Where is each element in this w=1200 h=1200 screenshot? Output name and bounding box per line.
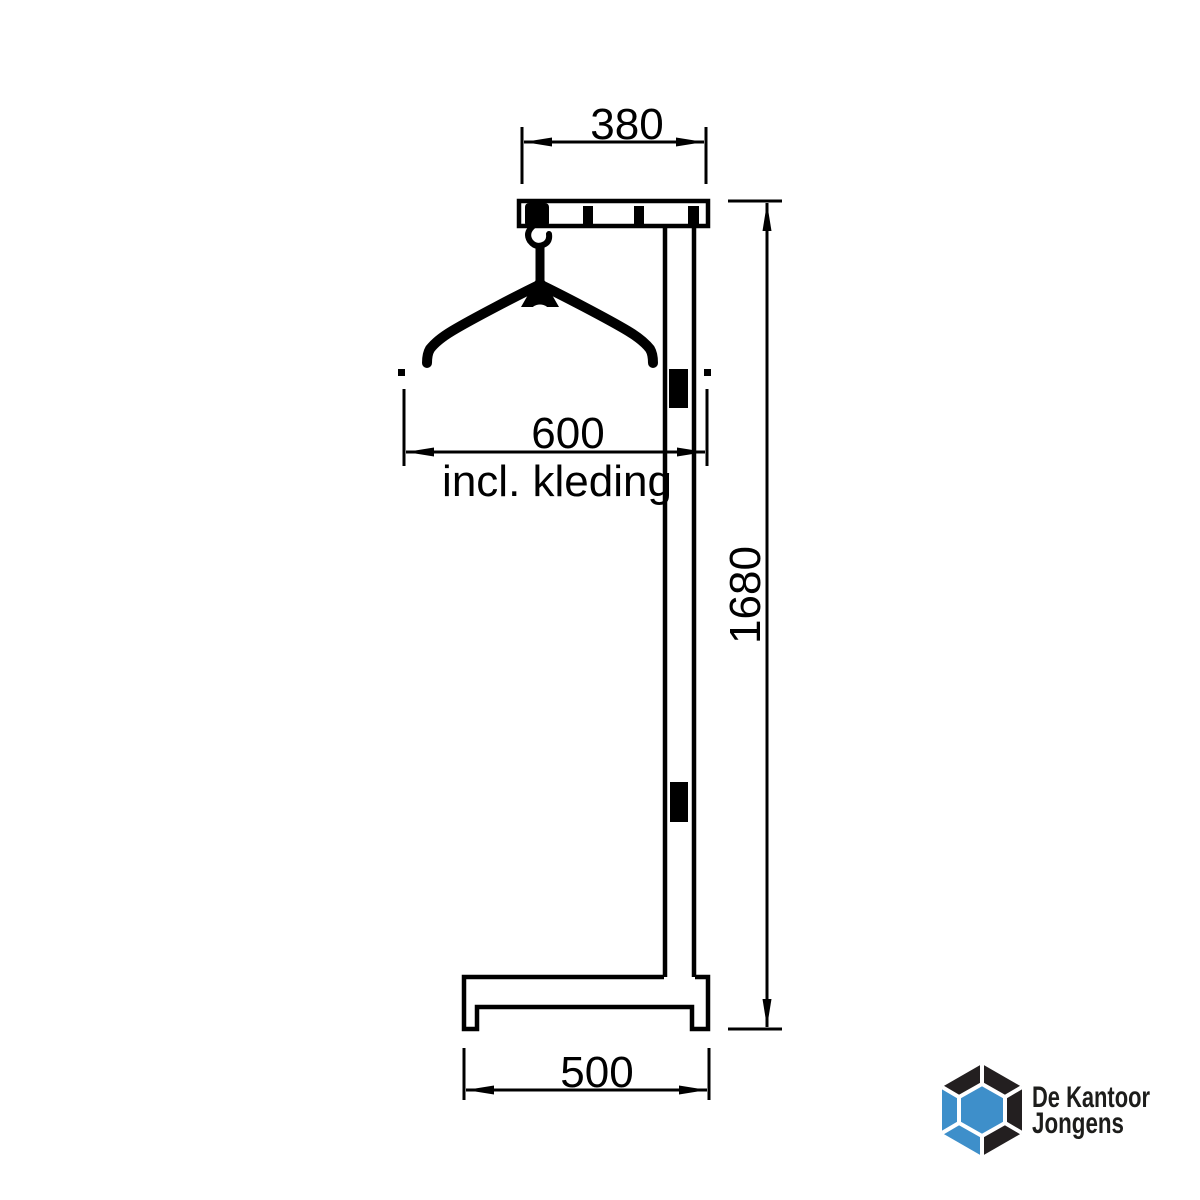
hanger-center-notch xyxy=(531,305,549,318)
dim-380-arrow-left xyxy=(524,138,552,147)
dim-top-width: 380 xyxy=(522,100,706,184)
dim-380-arrow-right xyxy=(676,138,704,147)
coat-rack-filled-parts xyxy=(521,203,699,822)
hanger-hook-icon xyxy=(528,226,549,246)
dim-600-dot-left xyxy=(398,369,405,376)
logo-wordmark: De Kantoor Jongens xyxy=(1032,1081,1150,1140)
dim-1680-arrow-down xyxy=(763,999,772,1027)
bar-hook-mark-1 xyxy=(583,206,593,225)
product-dimension-diagram: 380 600 incl. kleding 1680 500 xyxy=(0,0,1200,1200)
diagram-canvas: 380 600 incl. kleding 1680 500 xyxy=(0,0,1200,1200)
dim-600-arrow-left xyxy=(406,448,434,457)
hanger-left-arm xyxy=(427,284,541,363)
dim-600-arrow-right xyxy=(677,448,705,457)
dim-600-dot-right xyxy=(704,369,711,376)
base-outline xyxy=(464,977,708,1029)
dim-600-label: 600 xyxy=(531,409,604,458)
dim-500-label: 500 xyxy=(560,1048,633,1097)
dim-500-arrow-left xyxy=(466,1086,494,1095)
coat-rack-structure xyxy=(427,201,708,1029)
pole-hook-lower xyxy=(670,782,688,822)
dim-380-label: 380 xyxy=(590,100,663,149)
pole-hook-upper xyxy=(669,369,688,408)
dim-height: 1680 xyxy=(721,201,782,1029)
bar-hook-mark-3 xyxy=(688,206,699,225)
logo-hexagon-mark-icon xyxy=(942,1064,1022,1156)
hanger-right-arm xyxy=(539,284,653,363)
dim-600-note: incl. kleding xyxy=(442,457,672,506)
dim-base-width: 500 xyxy=(464,1048,709,1100)
bar-hook-mount xyxy=(525,203,549,227)
dim-1680-arrow-up xyxy=(763,203,772,231)
dim-1680-label: 1680 xyxy=(721,546,770,644)
bar-hook-mark-2 xyxy=(634,206,644,225)
logo-text-line2: Jongens xyxy=(1032,1107,1124,1140)
brand-logo: De Kantoor Jongens xyxy=(942,1064,1150,1156)
dim-500-arrow-right xyxy=(679,1086,707,1095)
